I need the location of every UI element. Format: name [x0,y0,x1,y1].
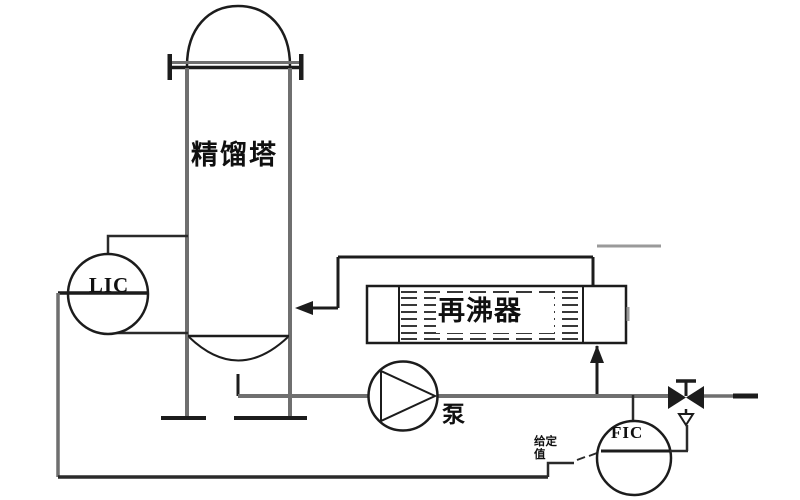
setpoint-label: 给定值 [534,436,562,461]
valve-body-right-triangle [686,386,704,409]
pump-label: 泵 [442,403,465,427]
signal-step-up [548,463,574,477]
column-dome [187,6,290,66]
valve-lower-triangle [679,414,693,425]
level-controller-tag: LIC [83,274,135,296]
flow-controller [597,395,688,495]
column-label: 精馏塔 [191,141,287,169]
control-valve [668,381,704,451]
flow-controller-tag: FIC [611,424,657,442]
lic-top-connector-line [108,236,188,256]
vapor-arrowhead [295,301,313,315]
reboiler-label: 再沸器 [438,297,552,325]
diagram-canvas [0,0,800,500]
distillation-column [161,6,307,418]
process-diagram: 精馏塔 再沸器 泵 LIC FIC 给定值 [0,0,800,500]
valve-body-left-triangle [668,386,686,409]
column-flange-bolt-left [168,54,173,80]
reboiler-inlet-arrowhead [590,345,604,363]
signal-dash-1 [577,457,585,460]
column-flange-bolt-right [299,54,304,80]
column-dished-bottom [189,337,288,361]
pump-circle [369,362,438,431]
signal-dash-2 [589,453,597,456]
